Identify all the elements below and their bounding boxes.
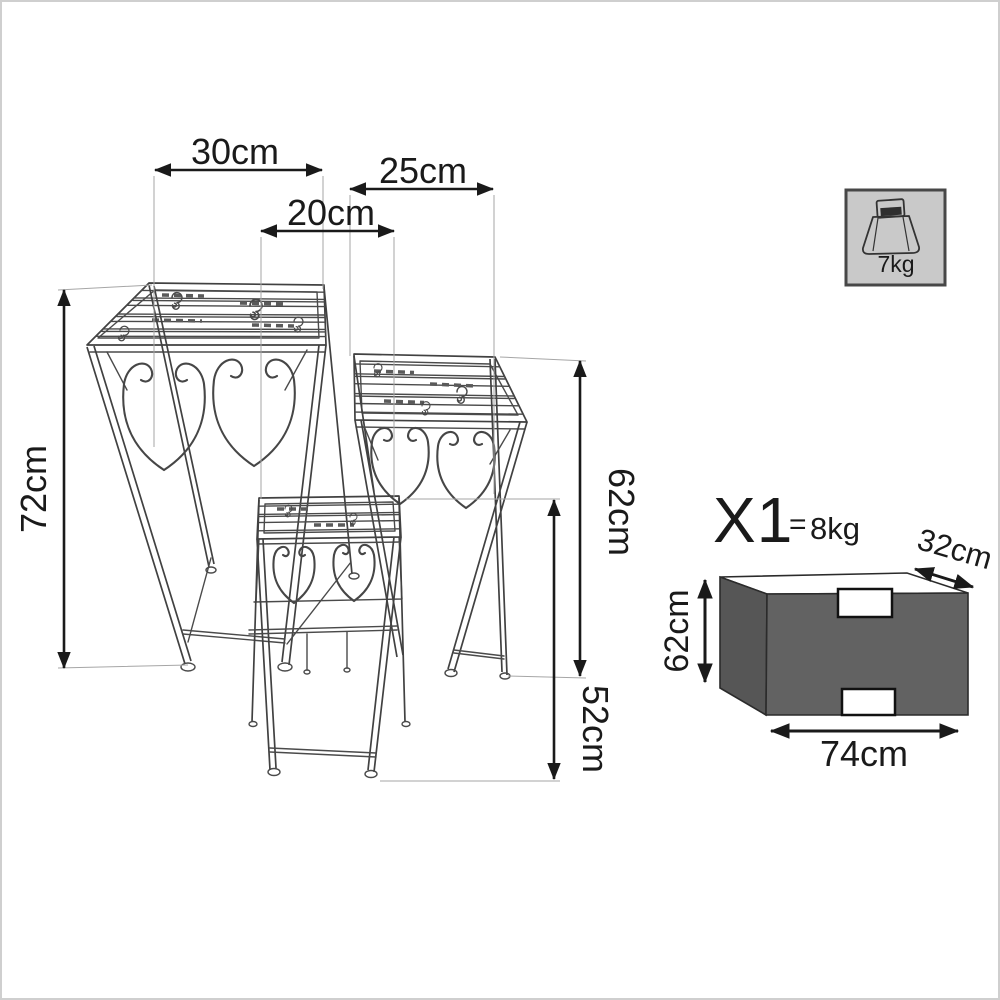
small-rod-foot: [304, 670, 310, 674]
medium-apron-scroll-heart: [371, 428, 428, 504]
dimension-medium-top-width: 25cm: [350, 150, 493, 191]
large-stand: [87, 283, 359, 671]
large-foot: [349, 573, 359, 579]
package-handle-top: [838, 589, 892, 617]
dimension-large-top-width: 30cm: [155, 131, 322, 172]
package-diagram: X1 = 8kg 32cm 62cm 74cm: [658, 484, 996, 774]
dimension-package-width: 74cm: [771, 731, 958, 774]
large-foot: [278, 663, 292, 671]
dimension-label: 62cm: [658, 589, 696, 672]
scroll-curl-icon: [117, 325, 130, 342]
dimension-label: 20cm: [287, 192, 375, 233]
dimension-label: 52cm: [575, 685, 616, 773]
small-stand: [249, 496, 410, 778]
dimension-medium-height: 62cm: [580, 361, 642, 676]
large-legs: [87, 285, 352, 665]
package-handle-bottom: [842, 689, 895, 715]
medium-foot: [445, 670, 457, 677]
dimension-label: 74cm: [820, 733, 908, 774]
small-center-rods: [307, 632, 347, 670]
dimension-small-top-width: 20cm: [261, 192, 394, 233]
dimension-package-height: 62cm: [658, 580, 705, 682]
large-corner-braces: [107, 350, 307, 390]
dimension-package-depth: 32cm: [914, 522, 997, 587]
large-top-slats: [96, 290, 326, 336]
extension-lines: [58, 176, 586, 781]
dimension-label: 25cm: [379, 150, 467, 191]
small-foot: [365, 771, 377, 778]
diagram-canvas: 30cm 25cm 20cm 72cm 62cm 52cm: [2, 2, 1000, 1000]
large-foot: [181, 663, 195, 671]
small-top-inner-frame: [264, 502, 395, 533]
product-dimension-diagram: 30cm 25cm 20cm 72cm 62cm 52cm: [0, 0, 1000, 1000]
scroll-curl-icon: [285, 505, 292, 517]
large-apron-scroll-heart: [213, 360, 295, 466]
package-weight-label: 8kg: [810, 511, 860, 546]
dimension-label: 72cm: [13, 445, 54, 533]
max-load-label: 7kg: [877, 251, 914, 277]
medium-apron-scroll-heart: [437, 432, 494, 508]
package-side-face: [720, 577, 767, 715]
small-foot: [249, 722, 257, 727]
max-load-badge: 7kg: [846, 190, 945, 285]
dimension-label: 30cm: [191, 131, 279, 172]
dimension-large-height: 72cm: [13, 290, 64, 668]
equals-sign: =: [789, 508, 807, 541]
large-apron-scroll-heart: [123, 364, 205, 470]
medium-stretchers: [454, 650, 504, 659]
package-quantity-label: X1: [713, 484, 793, 556]
small-foot: [268, 769, 280, 776]
dimension-label: 32cm: [914, 522, 997, 577]
dimension-label: 62cm: [601, 468, 642, 556]
small-foot: [402, 722, 410, 727]
plant-stands-drawing: 30cm 25cm 20cm 72cm 62cm 52cm: [13, 131, 642, 781]
small-rod-foot: [344, 668, 350, 672]
